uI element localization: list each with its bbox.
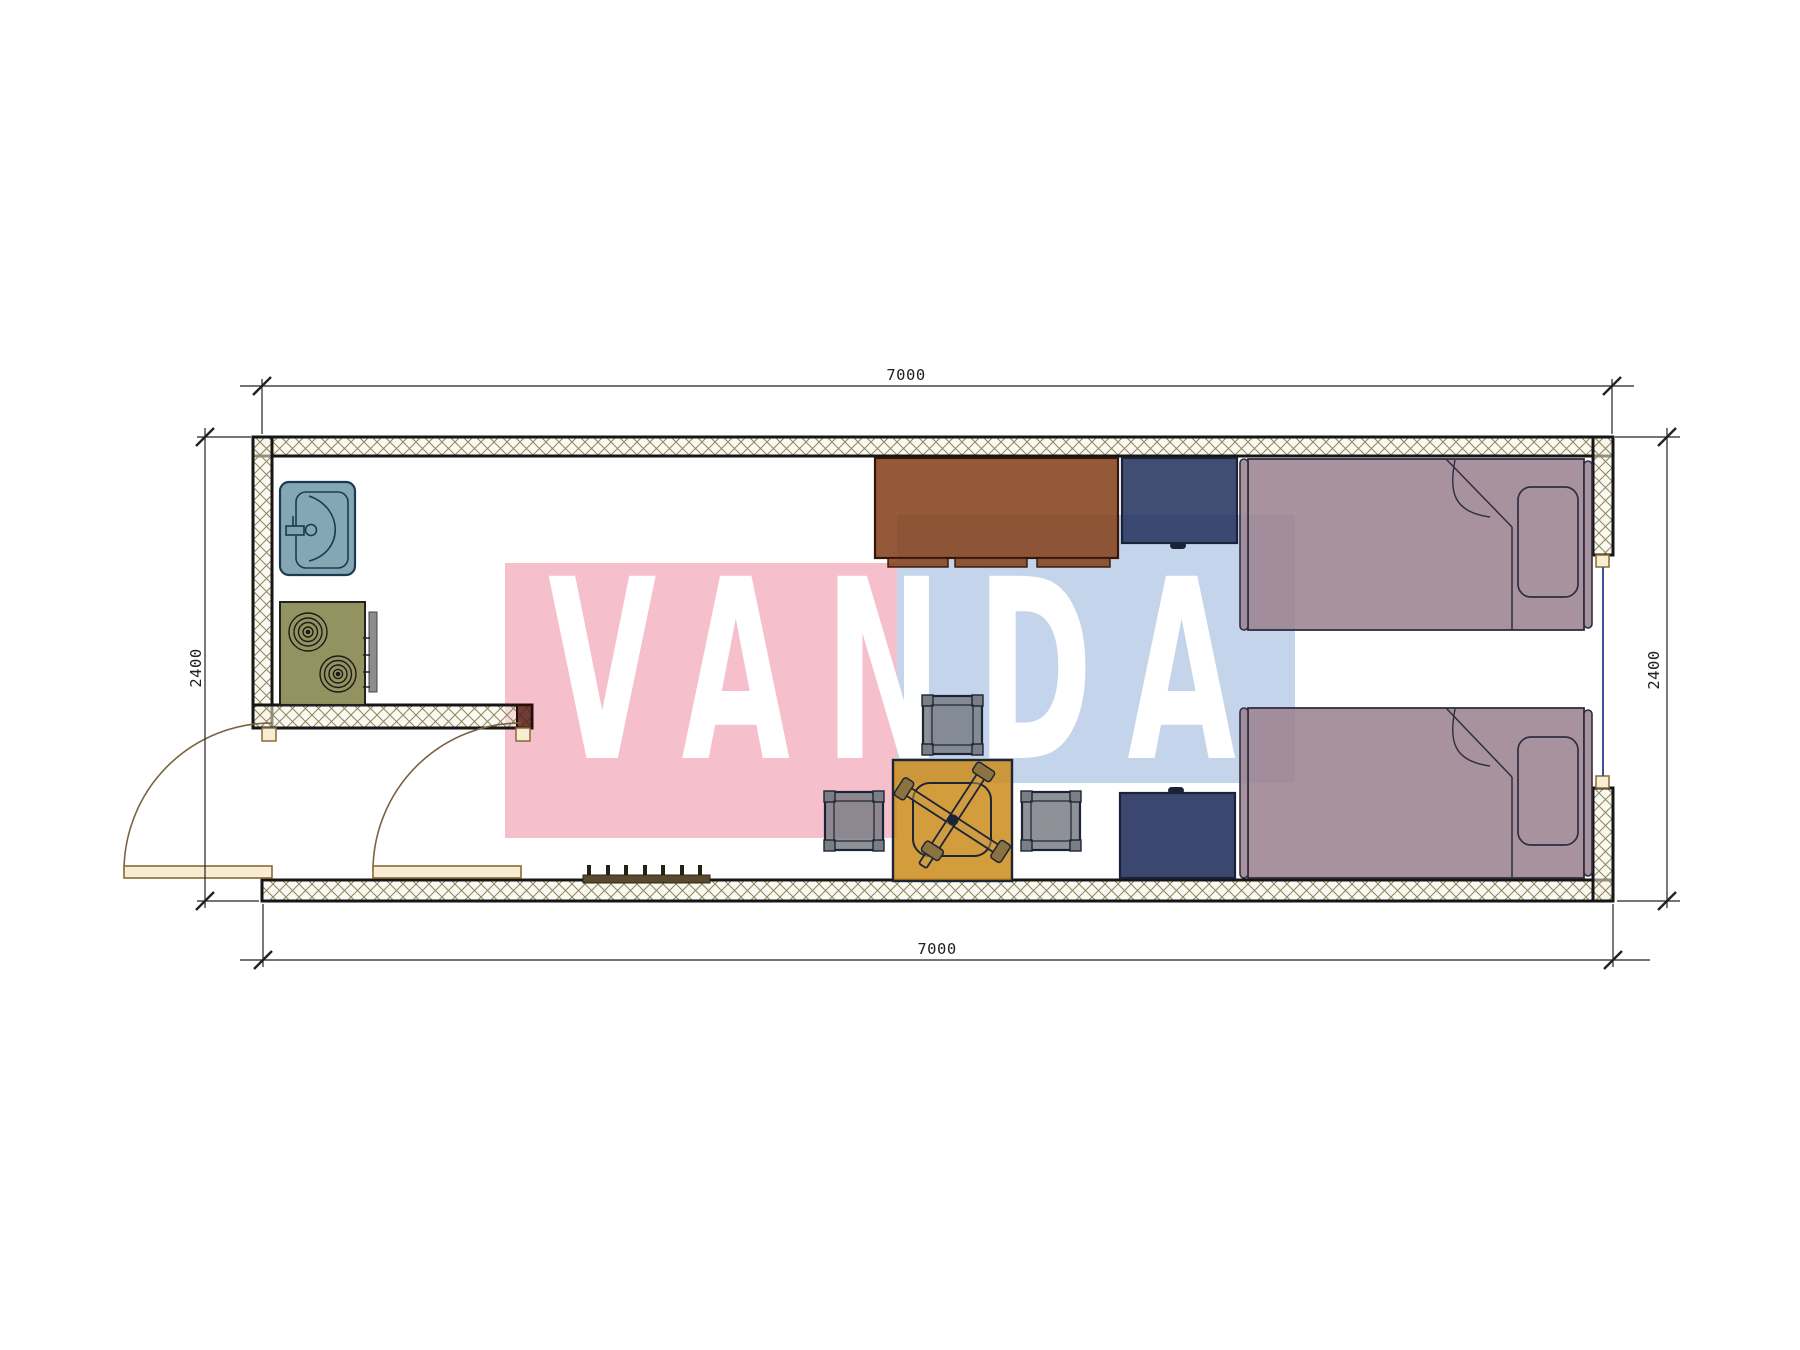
rack-peg: [643, 865, 647, 875]
stool-leg: [972, 695, 983, 706]
dimension-right-label: 2400: [1645, 650, 1663, 689]
bed-2: [1240, 708, 1592, 878]
bed-2-headboard: [1240, 708, 1248, 878]
dimension-top-label: 7000: [886, 366, 925, 384]
stove: [280, 602, 377, 705]
stool-top: [922, 695, 983, 755]
wall-kitchen-partition: [253, 705, 532, 728]
rack-peg: [698, 865, 702, 875]
dimension-top: [240, 377, 1634, 434]
stool-leg: [873, 840, 884, 851]
wardrobe-top-body: [1122, 458, 1237, 543]
rack-bar: [583, 875, 710, 883]
kitchen-sink: [280, 482, 355, 575]
wardrobe-bottom: [1120, 787, 1235, 878]
wardrobe-top-handle: [1170, 542, 1186, 549]
wall-bottom: [262, 880, 1613, 901]
stool-leg: [972, 744, 983, 755]
shoe-rack: [583, 865, 710, 883]
wall-partition-cap: [517, 705, 532, 728]
wardrobe-top: [1122, 458, 1237, 549]
wall-right-lower: [1593, 788, 1613, 901]
door-jamb-2: [516, 728, 530, 741]
wall-top: [253, 437, 1613, 456]
desk-drawer-tab: [888, 558, 948, 567]
rack-peg: [661, 865, 665, 875]
wall-right-upper: [1593, 437, 1613, 555]
door-leaf-2: [373, 866, 521, 878]
entry-door-1: [124, 723, 276, 878]
dimension-left: [196, 428, 259, 910]
stool-leg: [1070, 840, 1081, 851]
dimension-bottom-label: 7000: [917, 940, 956, 958]
door-swing-arc-1: [124, 723, 272, 871]
dimension-bottom: [240, 904, 1650, 969]
wardrobe-bottom-body: [1120, 793, 1235, 878]
bed-1-footboard: [1584, 461, 1592, 628]
stove-body: [280, 602, 365, 705]
door-jamb-1: [262, 728, 276, 741]
door-leaf-1: [124, 866, 272, 878]
rack-peg: [587, 865, 591, 875]
window-post-bottom: [1596, 776, 1609, 788]
stool-leg: [824, 840, 835, 851]
stool-leg: [1070, 791, 1081, 802]
stool-leg: [922, 695, 933, 706]
bed-1-headboard: [1240, 459, 1248, 630]
bed-1-mattress: [1248, 459, 1584, 630]
stool-left: [824, 791, 884, 851]
stool-leg: [1021, 791, 1032, 802]
desk-top: [875, 458, 1118, 558]
bed-1: [1240, 459, 1592, 630]
desk-drawer-tab: [955, 558, 1027, 567]
study-desk: [875, 458, 1118, 567]
stool-right: [1021, 791, 1081, 851]
plan-svg: VANDA: [0, 0, 1800, 1350]
dimension-left-label: 2400: [187, 648, 205, 687]
stool-leg: [1021, 840, 1032, 851]
stool-leg: [922, 744, 933, 755]
bed-2-footboard: [1584, 710, 1592, 876]
rack-peg: [624, 865, 628, 875]
rack-peg: [606, 865, 610, 875]
desk-drawer-tab: [1037, 558, 1110, 567]
window: [1596, 555, 1609, 788]
faucet-body: [286, 526, 304, 535]
rack-peg: [680, 865, 684, 875]
stool-leg: [824, 791, 835, 802]
floor-plan-canvas: VANDA: [0, 0, 1800, 1350]
window-post-top: [1596, 555, 1609, 567]
stove-control-strip: [369, 612, 377, 692]
door-swing-arc-2: [373, 723, 521, 871]
wall-left: [253, 437, 272, 728]
bed-2-mattress: [1248, 708, 1584, 878]
stool-leg: [873, 791, 884, 802]
wardrobe-bottom-handle: [1168, 787, 1184, 794]
